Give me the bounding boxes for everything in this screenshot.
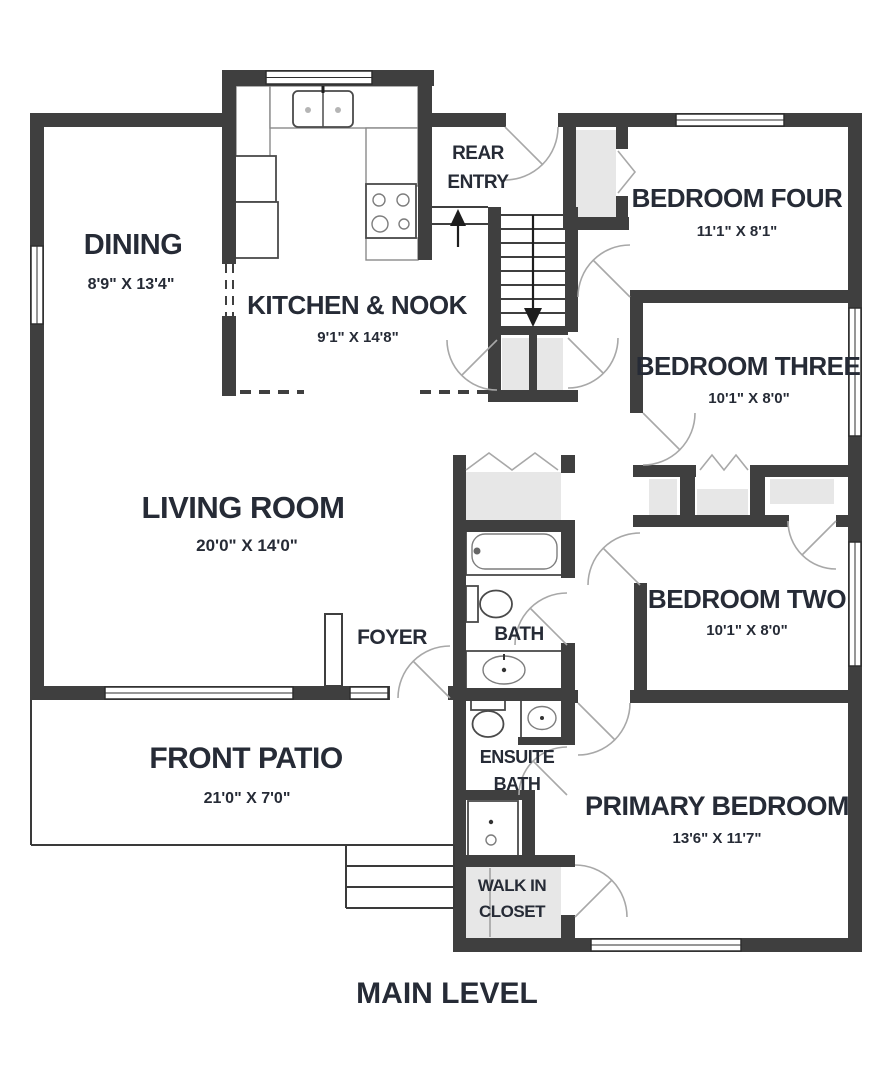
- bathtub-icon: [466, 528, 563, 575]
- room-label-walk-in-closet: WALK IN CLOSET: [478, 873, 546, 924]
- room-label-ensuite-bath: ENSUITE BATH: [480, 744, 555, 798]
- room-label-bedroom-three: BEDROOM THREE: [636, 352, 861, 381]
- room-label-rear-entry: REAR ENTRY: [447, 140, 508, 197]
- room-label-foyer: FOYER: [357, 622, 427, 654]
- room-dims-primary-bedroom: 13'6" X 11'7": [673, 831, 762, 848]
- room-dims-living-room: 20'0" X 14'0": [196, 537, 298, 556]
- ensuite-sink-icon: [521, 699, 563, 738]
- room-label-dining: DINING: [84, 230, 183, 262]
- rear-entry-line2: ENTRY: [447, 169, 508, 198]
- ensuite-toilet-icon: [471, 699, 505, 737]
- floor-plan: DINING 8'9" X 13'4" KITCHEN & NOOK 9'1" …: [0, 0, 889, 1080]
- foyer-partition: [325, 614, 342, 686]
- walk-in-line1: WALK IN: [478, 873, 546, 899]
- rear-entry-line1: REAR: [447, 140, 508, 169]
- room-label-front-patio: FRONT PATIO: [149, 742, 342, 775]
- room-label-bath: BATH: [494, 621, 543, 650]
- room-dims-dining: 8'9" X 13'4": [88, 276, 175, 294]
- room-label-primary-bedroom: PRIMARY BEDROOM: [585, 792, 849, 822]
- ensuite-line1: ENSUITE: [480, 744, 555, 771]
- room-dims-front-patio: 21'0" X 7'0": [204, 790, 291, 808]
- plan-title: MAIN LEVEL: [356, 977, 538, 1010]
- room-dims-bedroom-four: 11'1" X 8'1": [697, 224, 778, 241]
- room-dims-bedroom-three: 10'1" X 8'0": [708, 391, 789, 408]
- stairs-up-arrow: [450, 209, 466, 247]
- room-label-living-room: LIVING ROOM: [142, 491, 345, 525]
- bath-vanity-sink-icon: [466, 651, 566, 689]
- room-dims-bedroom-two: 10'1" X 8'0": [706, 623, 787, 640]
- room-dims-kitchen-nook: 9'1" X 14'8": [317, 330, 398, 347]
- cased-openings: [226, 264, 488, 392]
- room-label-bedroom-two: BEDROOM TWO: [648, 585, 846, 614]
- patio-steps: [346, 845, 454, 908]
- bath-toilet-icon: [466, 586, 512, 622]
- walk-in-line2: CLOSET: [478, 899, 546, 925]
- shower-icon: [468, 801, 518, 857]
- ensuite-line2: BATH: [480, 771, 555, 798]
- floor-plan-drawing: [0, 0, 889, 1080]
- room-label-kitchen-nook: KITCHEN & NOOK: [247, 291, 467, 320]
- room-label-bedroom-four: BEDROOM FOUR: [632, 184, 843, 213]
- kitchen-sink-icon: [293, 85, 353, 127]
- fridge-icon: [232, 156, 278, 258]
- stove-icon: [366, 184, 416, 238]
